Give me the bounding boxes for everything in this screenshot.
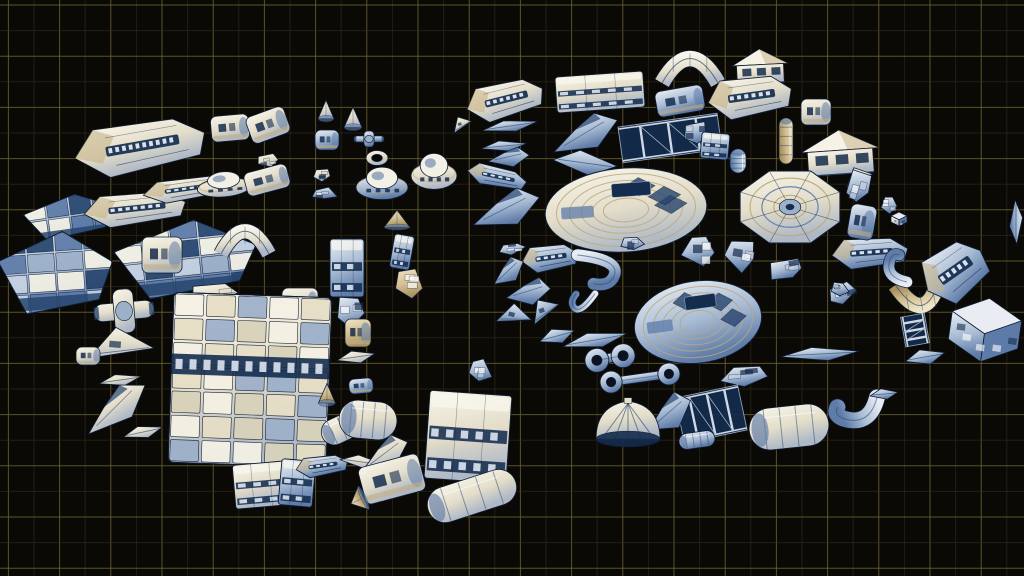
part-pod-29 [76, 347, 100, 365]
sprite-sheet [0, 0, 1024, 576]
part-pod-65 [801, 99, 831, 125]
part-pod-104 [846, 203, 878, 241]
part-pod-5 [315, 130, 339, 150]
part-box-23 [330, 239, 364, 297]
part-cyl-66 [779, 118, 793, 164]
part-box-53 [555, 71, 645, 113]
part-cyl-69 [730, 149, 746, 173]
part-pod-39 [348, 377, 373, 394]
part-pod-1 [210, 113, 250, 142]
part-pod-37 [345, 319, 371, 347]
part-truss-94 [901, 313, 930, 347]
part-block-35 [168, 292, 332, 467]
scene-canvas [0, 0, 1024, 576]
part-ring-8 [366, 151, 388, 166]
part-pod-22 [142, 237, 182, 273]
part-dish-72 [740, 171, 840, 243]
part-box-68 [700, 132, 730, 160]
